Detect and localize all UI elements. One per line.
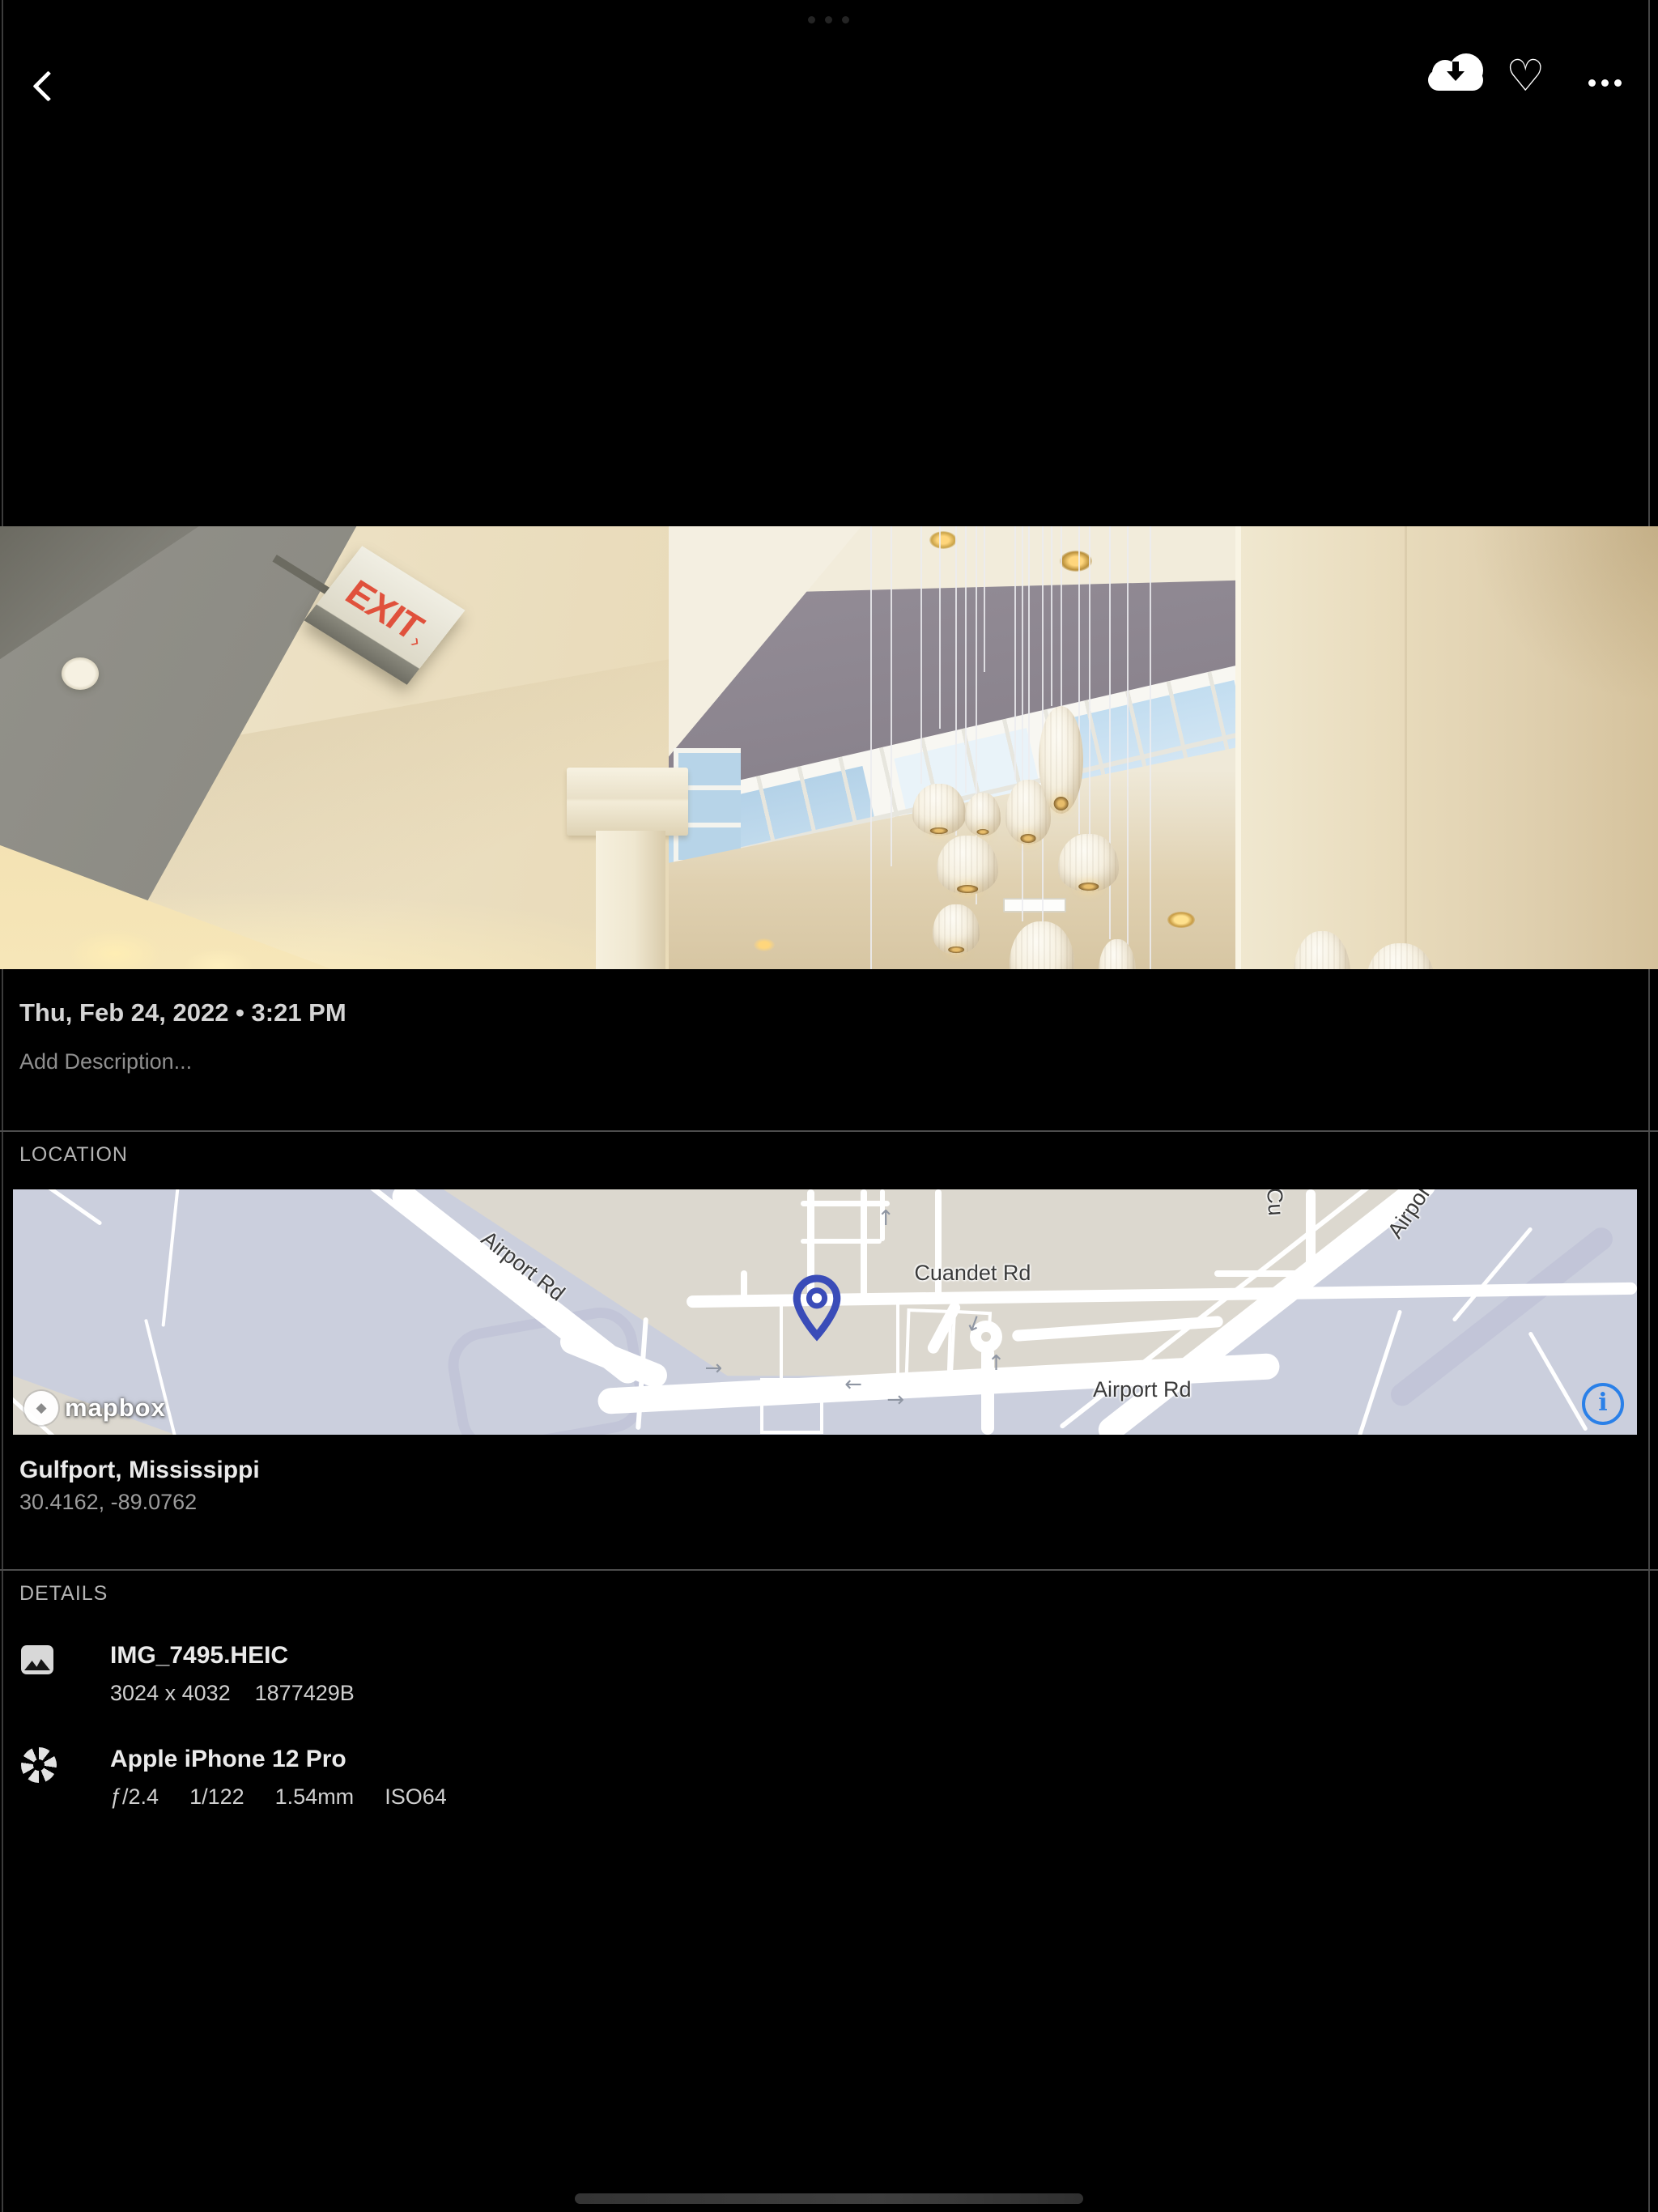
air-vent: [1003, 898, 1066, 912]
column-capital: [567, 768, 688, 836]
pendant-lamp: [912, 784, 966, 836]
map-info-button[interactable]: i: [1582, 1383, 1624, 1425]
pendant-lamp: [1058, 834, 1119, 892]
right-edge-line: [1648, 0, 1650, 2212]
location-section-label: LOCATION: [19, 1143, 128, 1167]
divider: [0, 1130, 1658, 1132]
recessed-light: [1060, 551, 1092, 572]
details-section-label: DETAILS: [19, 1582, 108, 1606]
home-indicator[interactable]: [575, 2193, 1083, 2204]
recessed-light: [1167, 912, 1195, 928]
foreground-wall: [1235, 526, 1658, 969]
location-coordinates: 30.4162, -89.0762: [19, 1490, 197, 1515]
traffic-arrow: ←: [844, 1372, 862, 1397]
traffic-arrow: →: [705, 1356, 723, 1380]
road-label: Cuandet Rd: [914, 1261, 1031, 1286]
photo-viewer[interactable]: EXIT›: [0, 526, 1658, 969]
camera-meta: ƒ/2.41/1221.54mmISO64: [110, 1784, 478, 1810]
location-place: Gulfport, Mississippi: [19, 1457, 260, 1484]
file-meta: 3024 x 40321877429B: [110, 1681, 379, 1706]
chevron-left-icon: [32, 70, 63, 101]
recessed-light: [754, 938, 775, 951]
pendant-lamp: [1039, 706, 1083, 814]
traffic-arrow: →: [886, 1388, 904, 1412]
location-map[interactable]: Airport Rd Cuandet Rd Airport Rd Airport…: [13, 1189, 1637, 1435]
favorite-button[interactable]: ♡: [1506, 50, 1545, 102]
camera-model: Apple iPhone 12 Pro: [110, 1746, 346, 1773]
road-label: Cu: [1261, 1189, 1288, 1217]
pendant-lamp: [965, 793, 1001, 836]
recessed-light: [929, 531, 957, 549]
file-name: IMG_7495.HEIC: [110, 1642, 288, 1670]
back-button[interactable]: [24, 63, 70, 108]
mapbox-attribution[interactable]: ◆ mapbox: [24, 1391, 166, 1425]
ellipsis-icon: [1588, 79, 1596, 87]
pendant-lamp: [933, 904, 980, 955]
traffic-arrow: ↑: [877, 1206, 895, 1231]
map-pin-icon: [791, 1267, 843, 1348]
photo-date: Thu, Feb 24, 2022 • 3:21 PM: [19, 998, 346, 1027]
download-button[interactable]: [1428, 58, 1480, 110]
description-input[interactable]: Add Description...: [19, 1049, 192, 1074]
road-label: Airport Rd: [1093, 1377, 1192, 1402]
smoke-detector: [62, 657, 99, 690]
image-icon: [21, 1645, 53, 1674]
photo-detail-screen: ♡ EXIT›: [0, 0, 1658, 2212]
column: [596, 831, 665, 969]
left-edge-line: [2, 0, 3, 2212]
mapbox-logo-icon: ◆: [24, 1391, 58, 1425]
traffic-arrow: ↑: [988, 1351, 1005, 1376]
divider: [0, 1569, 1658, 1571]
multitask-handle-icon[interactable]: [808, 16, 849, 23]
pendant-lamp: [937, 836, 998, 895]
aperture-icon: [21, 1747, 57, 1783]
more-options-button[interactable]: [1584, 58, 1635, 110]
heart-icon: ♡: [1506, 50, 1545, 101]
